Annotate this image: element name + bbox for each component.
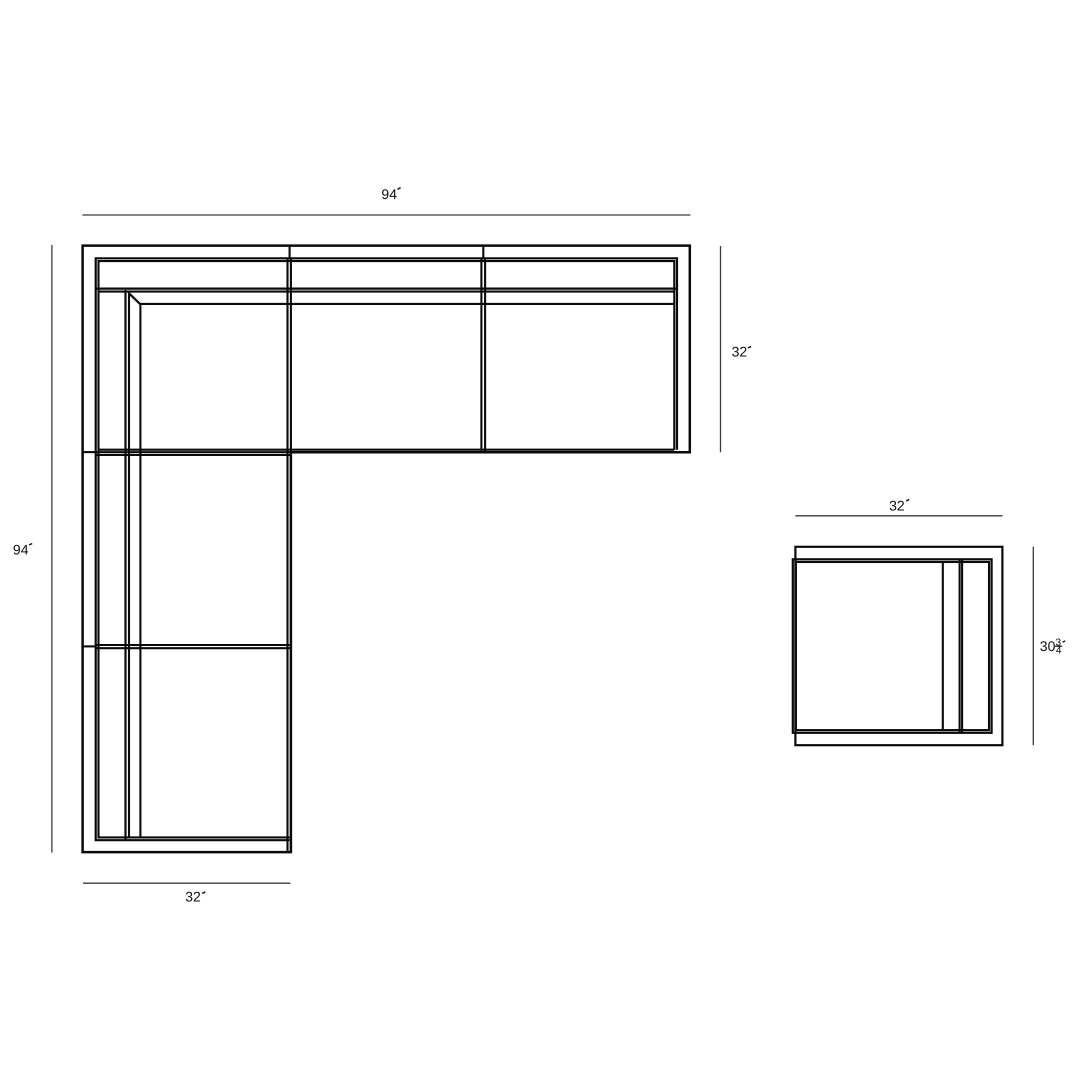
svg-text:32: 32 xyxy=(732,344,748,360)
svg-text:32: 32 xyxy=(185,888,201,904)
svg-text:32: 32 xyxy=(889,497,905,513)
svg-text:4: 4 xyxy=(1056,646,1062,657)
svg-text:94: 94 xyxy=(381,186,397,202)
svg-text:30: 30 xyxy=(1040,638,1056,654)
svg-text:94: 94 xyxy=(13,542,29,558)
